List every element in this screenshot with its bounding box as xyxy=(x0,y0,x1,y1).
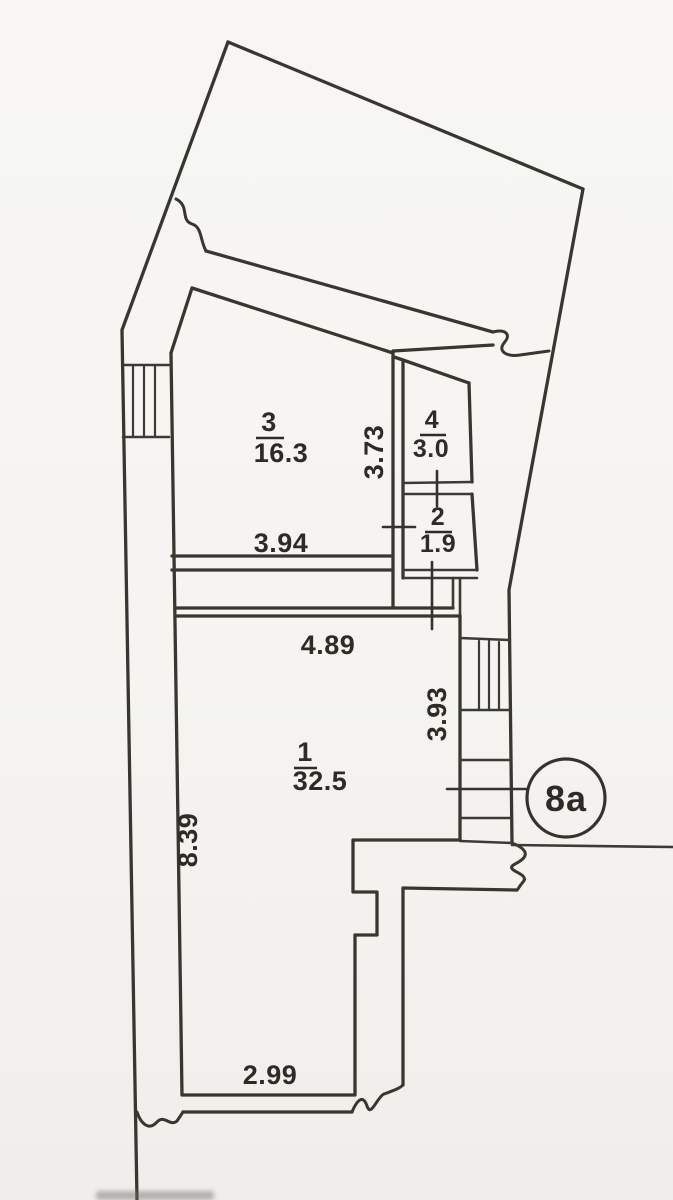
dim-room3-bottom: 3.94 xyxy=(254,528,309,558)
dim-room1-top: 4.89 xyxy=(301,630,356,660)
break-bottom-left xyxy=(137,1112,183,1126)
window-right-wall xyxy=(479,641,499,709)
outer-boundary-walls xyxy=(122,42,583,1200)
room-2-area: 1.9 xyxy=(420,530,456,558)
unit-badge: 8a xyxy=(447,759,605,837)
dim-room1-left: 8.39 xyxy=(173,813,203,868)
room-4-area: 3.0 xyxy=(413,435,449,463)
room-3-number: 3 xyxy=(261,407,277,437)
room-1-area: 32.5 xyxy=(293,766,348,796)
unit-badge-label: 8a xyxy=(545,778,587,819)
room-4-number: 4 xyxy=(425,406,439,434)
dim-room1-right: 3.93 xyxy=(422,687,452,742)
floor-plan-drawing: 8a 3 16.3 4 3.0 2 1.9 1 32.5 3.94 3.73 4… xyxy=(0,0,673,1200)
room-1-number: 1 xyxy=(297,737,313,767)
room-3-area: 16.3 xyxy=(254,438,309,468)
window-left-wall xyxy=(123,365,169,437)
dim-room1-bottom: 2.99 xyxy=(243,1060,298,1090)
scan-smudge xyxy=(96,1191,214,1200)
break-left-diagonal xyxy=(176,199,206,251)
scanned-floor-plan-page: 8a 3 16.3 4 3.0 2 1.9 1 32.5 3.94 3.73 4… xyxy=(0,0,673,1200)
dim-room3-right: 3.73 xyxy=(359,425,389,480)
room-2-number: 2 xyxy=(431,503,445,531)
break-terrace-bottom xyxy=(493,331,549,355)
break-right-side xyxy=(512,843,526,890)
break-bottom-right xyxy=(352,1085,403,1112)
